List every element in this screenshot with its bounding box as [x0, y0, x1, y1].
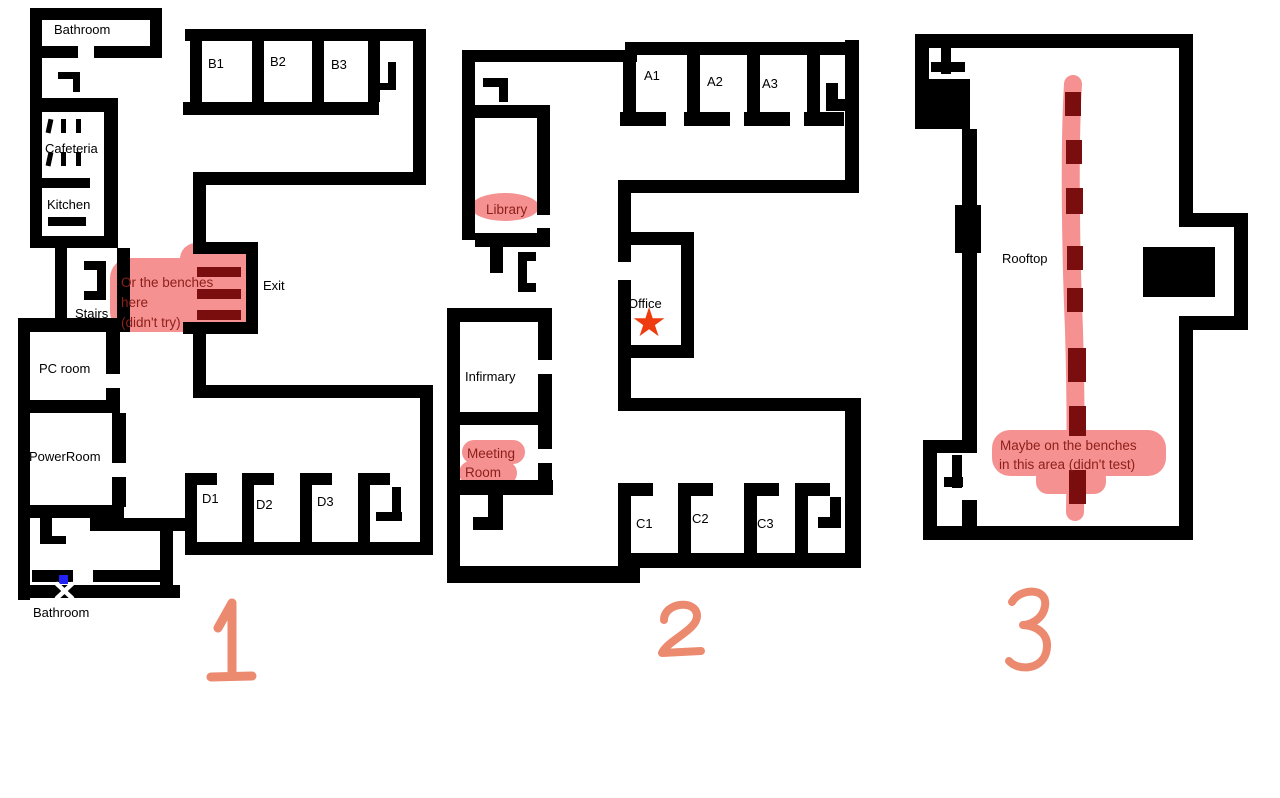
room-label-office: Office	[628, 296, 662, 311]
room-label-c1: C1	[636, 516, 653, 531]
bench-icon	[1067, 288, 1083, 312]
bench-icon	[1069, 406, 1086, 436]
floor-2-number	[662, 605, 701, 653]
bench-icon	[1069, 470, 1086, 504]
room-label-a1: A1	[644, 68, 660, 83]
room-label-d1: D1	[202, 491, 219, 506]
room-label-bathroom-bottom: Bathroom	[33, 605, 89, 620]
room-label-power-room: PowerRoom	[29, 449, 101, 464]
room-label-d2: D2	[256, 497, 273, 512]
room-label-b1: B1	[208, 56, 224, 71]
room-label-library: Library	[486, 202, 528, 217]
floor-2-plan: ★ A1 A2 A3 Library Office Infirmary Meet…	[447, 40, 861, 653]
bench-icon	[1068, 348, 1086, 382]
floor-3-plan: Rooftop Maybe on the benches in this are…	[915, 34, 1248, 667]
room-label-kitchen: Kitchen	[47, 197, 90, 212]
bench-icon	[1065, 92, 1081, 116]
room-label-rooftop: Rooftop	[1002, 251, 1048, 266]
blue-marker-icon	[59, 575, 68, 584]
floor-1-number	[211, 603, 252, 677]
elevator-block	[1143, 247, 1215, 297]
bench-icon	[1066, 188, 1083, 214]
room-label-d3: D3	[317, 494, 334, 509]
floor-1-plan: Bathroom B1 B2 B3 Cafeteria Kitchen Stai…	[18, 8, 433, 677]
bench-icon	[197, 289, 241, 299]
annotation-line: in this area (didn't test)	[999, 457, 1135, 472]
room-label-b3: B3	[331, 57, 347, 72]
bench-icon	[197, 310, 241, 320]
room-label-pc-room: PC room	[39, 361, 90, 376]
room-label-stairs: Stairs	[75, 306, 109, 321]
room-label-a2: A2	[707, 74, 723, 89]
room-label-cafeteria: Cafeteria	[45, 141, 99, 156]
room-label-meeting-room: Meeting	[467, 446, 515, 461]
annotation-line: here	[121, 295, 148, 310]
room-label-b2: B2	[270, 54, 286, 69]
room-label-infirmary: Infirmary	[465, 369, 516, 384]
room-label-a3: A3	[762, 76, 778, 91]
bench-icon	[1067, 246, 1083, 270]
room-label-bathroom-top: Bathroom	[54, 22, 110, 37]
room-label-c2: C2	[692, 511, 709, 526]
annotation-line: Maybe on the benches	[1000, 438, 1137, 453]
room-label-c3: C3	[757, 516, 774, 531]
room-label-meeting-room: Room	[465, 465, 501, 480]
room-label-exit: Exit	[263, 278, 285, 293]
annotation-line: Or the benches	[121, 275, 214, 290]
annotation-line: (didn't try)	[121, 315, 181, 330]
bench-icon	[1066, 140, 1082, 164]
floor-3-number	[1009, 592, 1047, 668]
floor-plan-image: Bathroom B1 B2 B3 Cafeteria Kitchen Stai…	[0, 0, 1280, 798]
